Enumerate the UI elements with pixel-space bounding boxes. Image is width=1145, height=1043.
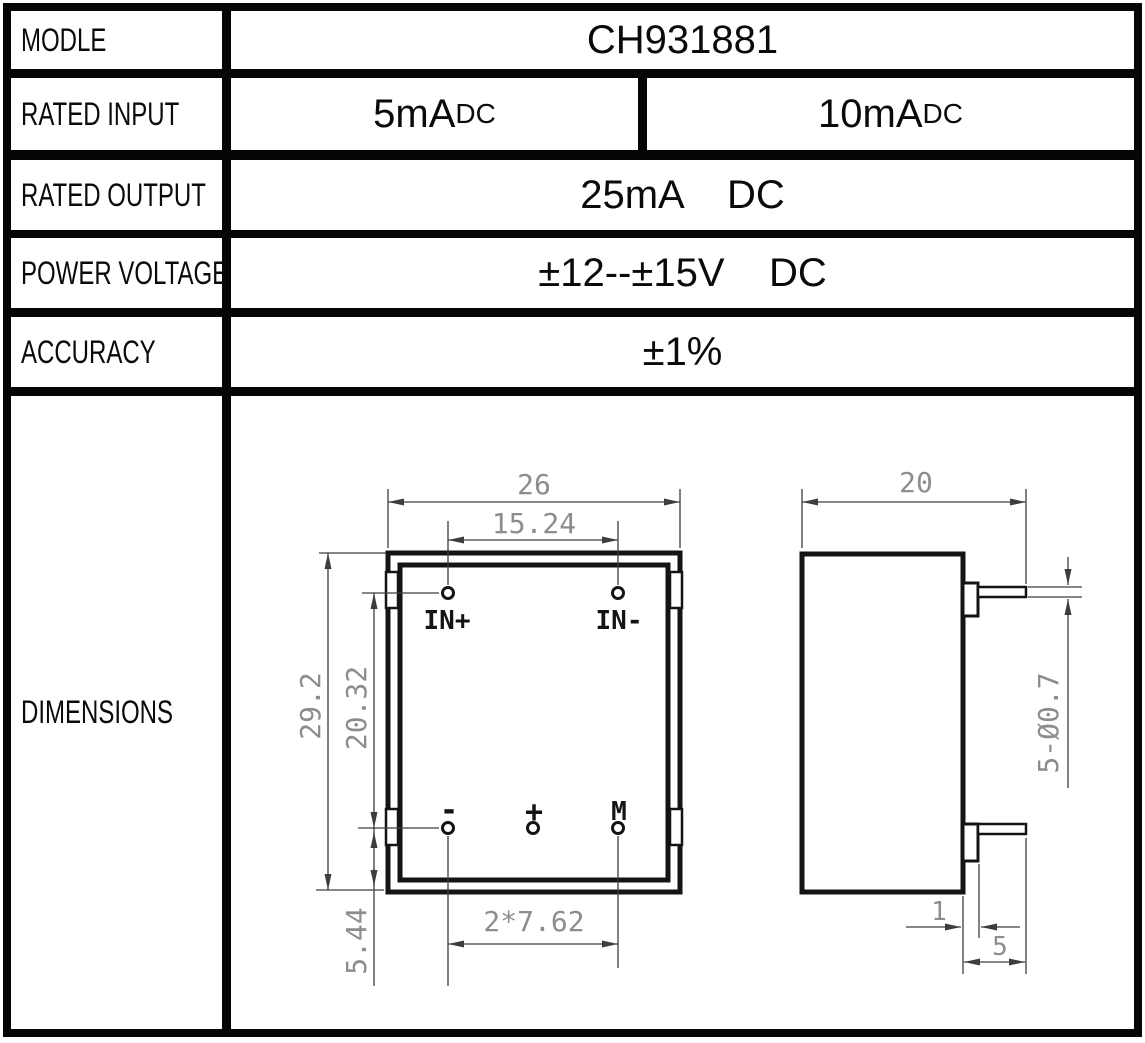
side-case	[802, 554, 963, 892]
case-notch-right-bottom	[670, 809, 682, 845]
dim-pin-row-to-bottom: 5.44	[340, 907, 373, 974]
dimensions-drawing: IN+ IN- - + M 26 15.24 29.2	[0, 0, 1145, 1043]
side-bottom-pin-lead	[978, 824, 1026, 834]
dim-pin-length: 5	[992, 932, 1008, 962]
dim-body-width: 26	[517, 468, 551, 501]
dim-pin-step: 1	[931, 897, 947, 927]
dim-body-depth: 20	[899, 466, 933, 499]
side-view-dimensions: 20 5-Ø0.7 1 5	[802, 466, 1082, 974]
pin-label-in-plus: IN+	[424, 606, 471, 636]
dim-pin-spec: 5-Ø0.7	[1032, 672, 1065, 773]
front-outer-case	[388, 553, 680, 892]
case-notch-right-top	[670, 572, 682, 608]
dim-pin-rows-span: 20.32	[340, 666, 373, 750]
side-top-pin-lead	[978, 587, 1026, 597]
side-view	[802, 554, 1026, 892]
dim-body-height: 29.2	[294, 672, 327, 739]
side-top-pin-stub	[963, 583, 978, 616]
pin-label-in-minus: IN-	[596, 606, 643, 636]
pin-label-minus: -	[440, 793, 458, 828]
pin-in-plus	[443, 588, 454, 599]
side-bottom-pin-stub	[963, 824, 978, 861]
case-notch-left-bottom	[386, 809, 398, 845]
pin-in-minus	[613, 588, 624, 599]
front-view-dimensions: 26 15.24 29.2 20.32 5.44 2*7.6	[294, 468, 680, 986]
dim-top-pin-pitch: 15.24	[492, 507, 576, 540]
case-notch-left-top	[386, 572, 398, 608]
pin-label-plus: +	[525, 795, 543, 830]
dim-bottom-pin-pitch: 2*7.62	[483, 905, 584, 938]
pin-label-m: M	[611, 797, 627, 827]
front-view: IN+ IN- - + M	[386, 553, 682, 892]
datasheet-page: MODLE RATED INPUT RATED OUTPUT POWER VOL…	[0, 0, 1145, 1043]
